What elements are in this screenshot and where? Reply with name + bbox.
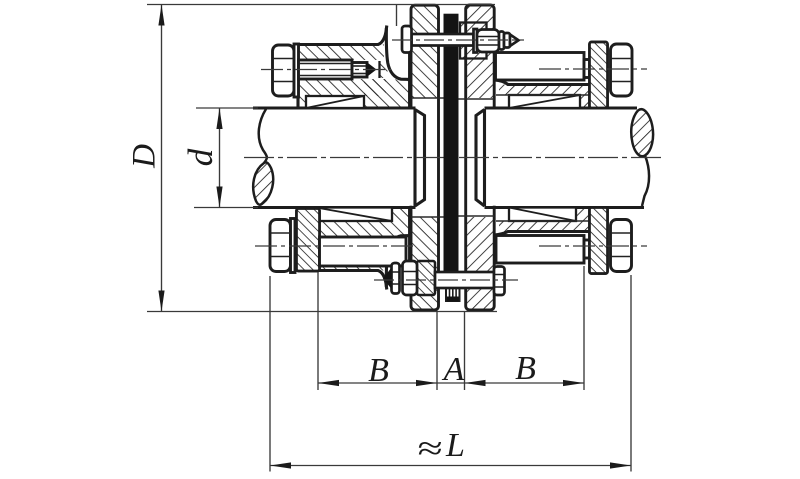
svg-text:d: d: [181, 148, 220, 166]
svg-text:≈: ≈: [417, 429, 442, 467]
svg-text:L: L: [445, 427, 465, 464]
svg-text:B: B: [368, 352, 389, 389]
svg-text:A: A: [442, 351, 465, 388]
svg-text:D: D: [127, 144, 163, 169]
svg-text:B: B: [515, 350, 536, 387]
